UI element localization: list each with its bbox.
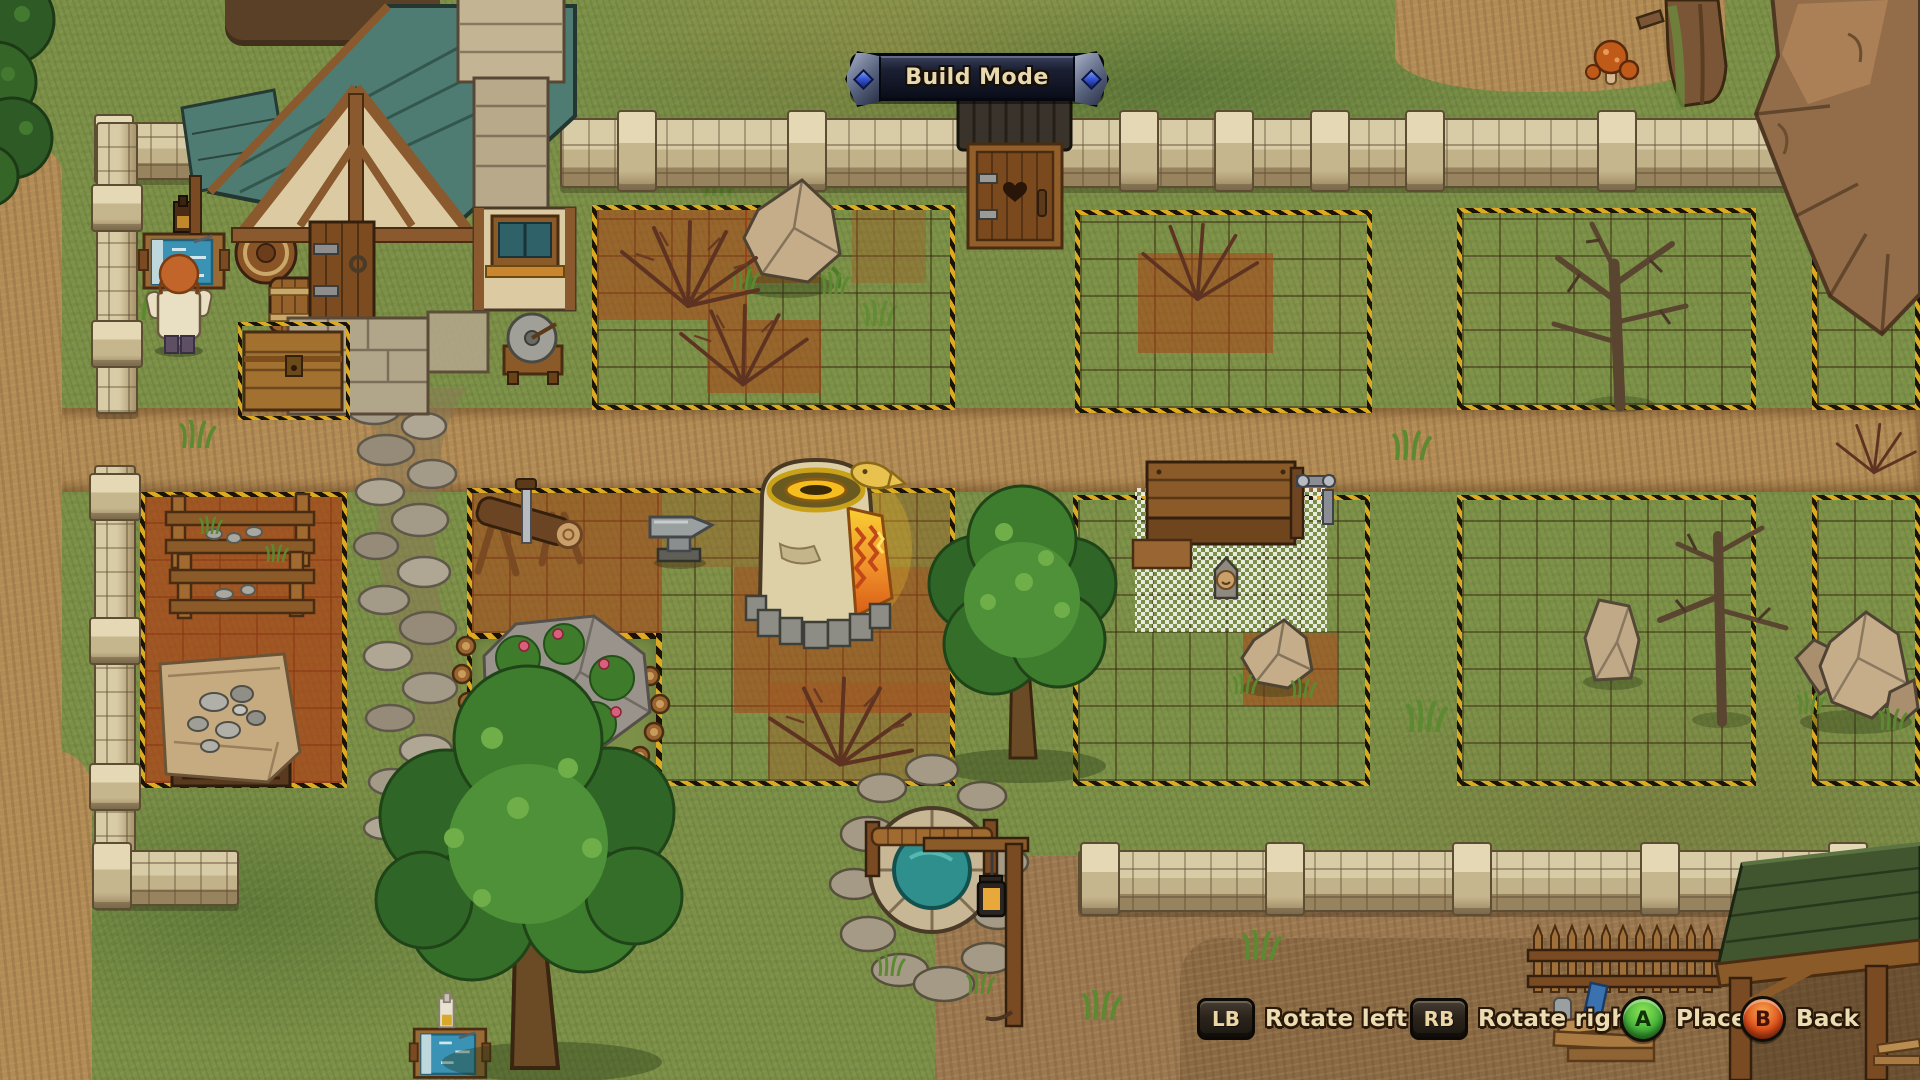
anvil[interactable] [642, 503, 718, 569]
corner-foliage [0, 0, 92, 196]
fence-pillar [1119, 110, 1159, 192]
mushroom-graphic [1584, 38, 1640, 90]
timber-racks-graphic [168, 496, 318, 624]
banner-ornament-left [845, 51, 881, 107]
dead-bush [1828, 405, 1920, 493]
fence-pillar [89, 763, 141, 811]
window-sill [486, 266, 564, 277]
hint-rotate-left: LB Rotate left [1197, 998, 1407, 1040]
sawhorse[interactable] [470, 483, 586, 579]
rotate-left-label: Rotate left [1265, 1006, 1407, 1032]
oak-tree-large [362, 648, 696, 1080]
tilled-soil [852, 210, 926, 283]
well[interactable] [836, 742, 1052, 1040]
tree-trunk-graphic [1648, 0, 1740, 122]
gem-icon [852, 68, 873, 89]
banner-ornament-right [1073, 51, 1109, 107]
timber-racks[interactable] [168, 496, 318, 624]
porch-post [190, 176, 201, 234]
outhouse[interactable] [958, 90, 1073, 256]
game-viewport: Build Mode LB Rotate left RB Rotate righ… [0, 0, 1920, 1080]
stone-fence-left-lower [94, 465, 136, 863]
foliage-graphic [0, 0, 92, 196]
storage-chest[interactable] [238, 322, 350, 420]
fence-pillar [1214, 110, 1254, 192]
cliff-rocks [1738, 0, 1920, 340]
fence-pillar [89, 473, 141, 521]
hint-back: B Back [1740, 996, 1859, 1042]
boulder-graphic [1232, 610, 1318, 698]
back-label: Back [1796, 1006, 1859, 1032]
dirt-path-left-wide [0, 750, 92, 1080]
hint-place: A Place [1620, 996, 1747, 1042]
covered-pallet-graphic [152, 646, 308, 793]
hint-rotate-right: RB Rotate right [1410, 998, 1639, 1040]
boulder-plot-g [1232, 610, 1318, 698]
fence-pillar [89, 617, 141, 665]
build-mode-label: Build Mode [905, 65, 1049, 90]
dead-tree-graphic [1520, 208, 1730, 414]
dead-tree [1520, 208, 1730, 414]
well-graphic [836, 742, 1052, 1040]
grass-tuft [1404, 700, 1450, 732]
grass-tuft [1080, 990, 1124, 1020]
sawhorse-graphic [470, 483, 586, 579]
dead-tree-graphic [1638, 500, 1800, 730]
furnace-graphic [728, 448, 906, 670]
anvil-graphic [642, 503, 718, 569]
lb-button[interactable]: LB [1197, 998, 1255, 1040]
dead-bush [1125, 212, 1270, 312]
shed-roof [1578, 842, 1920, 1080]
tree-trunk-top [1648, 0, 1740, 122]
fence-pillar [617, 110, 657, 192]
dead-bush [668, 292, 818, 400]
oak-tree-graphic [922, 462, 1122, 786]
fence-pillar [1452, 842, 1492, 916]
dead-tree [1638, 500, 1800, 730]
gem-icon [1080, 68, 1101, 89]
fence-pillar [1265, 842, 1305, 916]
chest-graphic [242, 326, 346, 416]
grass-tuft [178, 420, 218, 448]
dead-bush-graphic [1125, 212, 1270, 312]
dead-bush-graphic [1828, 405, 1920, 493]
chimney [474, 78, 548, 208]
chimney-cap [458, 0, 564, 82]
build-mode-banner: Build Mode [850, 53, 1104, 101]
boulder-cluster [1786, 596, 1920, 734]
fence-pillar [1405, 110, 1445, 192]
rb-button[interactable]: RB [1410, 998, 1468, 1040]
rotate-right-label: Rotate right [1478, 1006, 1639, 1032]
boulder-cluster-graphic [1786, 596, 1920, 734]
covered-pallet [152, 646, 308, 793]
grass-tuft [1390, 430, 1434, 460]
oak-tree-graphic [362, 648, 696, 1080]
cliff-graphic [1738, 0, 1920, 340]
fence-pillar [91, 320, 143, 368]
workbench-top [1147, 462, 1295, 520]
oak-tree [922, 462, 1122, 786]
fence-pillar [91, 184, 143, 232]
stone-fence-bottom-left [94, 850, 239, 906]
a-button[interactable]: A [1620, 996, 1666, 1042]
b-button[interactable]: B [1740, 996, 1786, 1042]
furnace[interactable] [728, 448, 906, 670]
place-label: Place [1676, 1006, 1747, 1032]
stone-fence-left-upper [96, 122, 138, 414]
lantern-post [1006, 844, 1022, 1026]
outhouse-graphic [958, 90, 1073, 256]
fence-pillar [1310, 110, 1350, 192]
fence-pillar [1597, 110, 1637, 192]
shed-graphic [1578, 842, 1920, 1080]
fence-pillar [92, 842, 132, 910]
fence-pillar [1080, 842, 1120, 916]
mushrooms [1584, 38, 1640, 90]
dead-bush-graphic [668, 292, 818, 400]
grass-tuft [1240, 930, 1284, 960]
